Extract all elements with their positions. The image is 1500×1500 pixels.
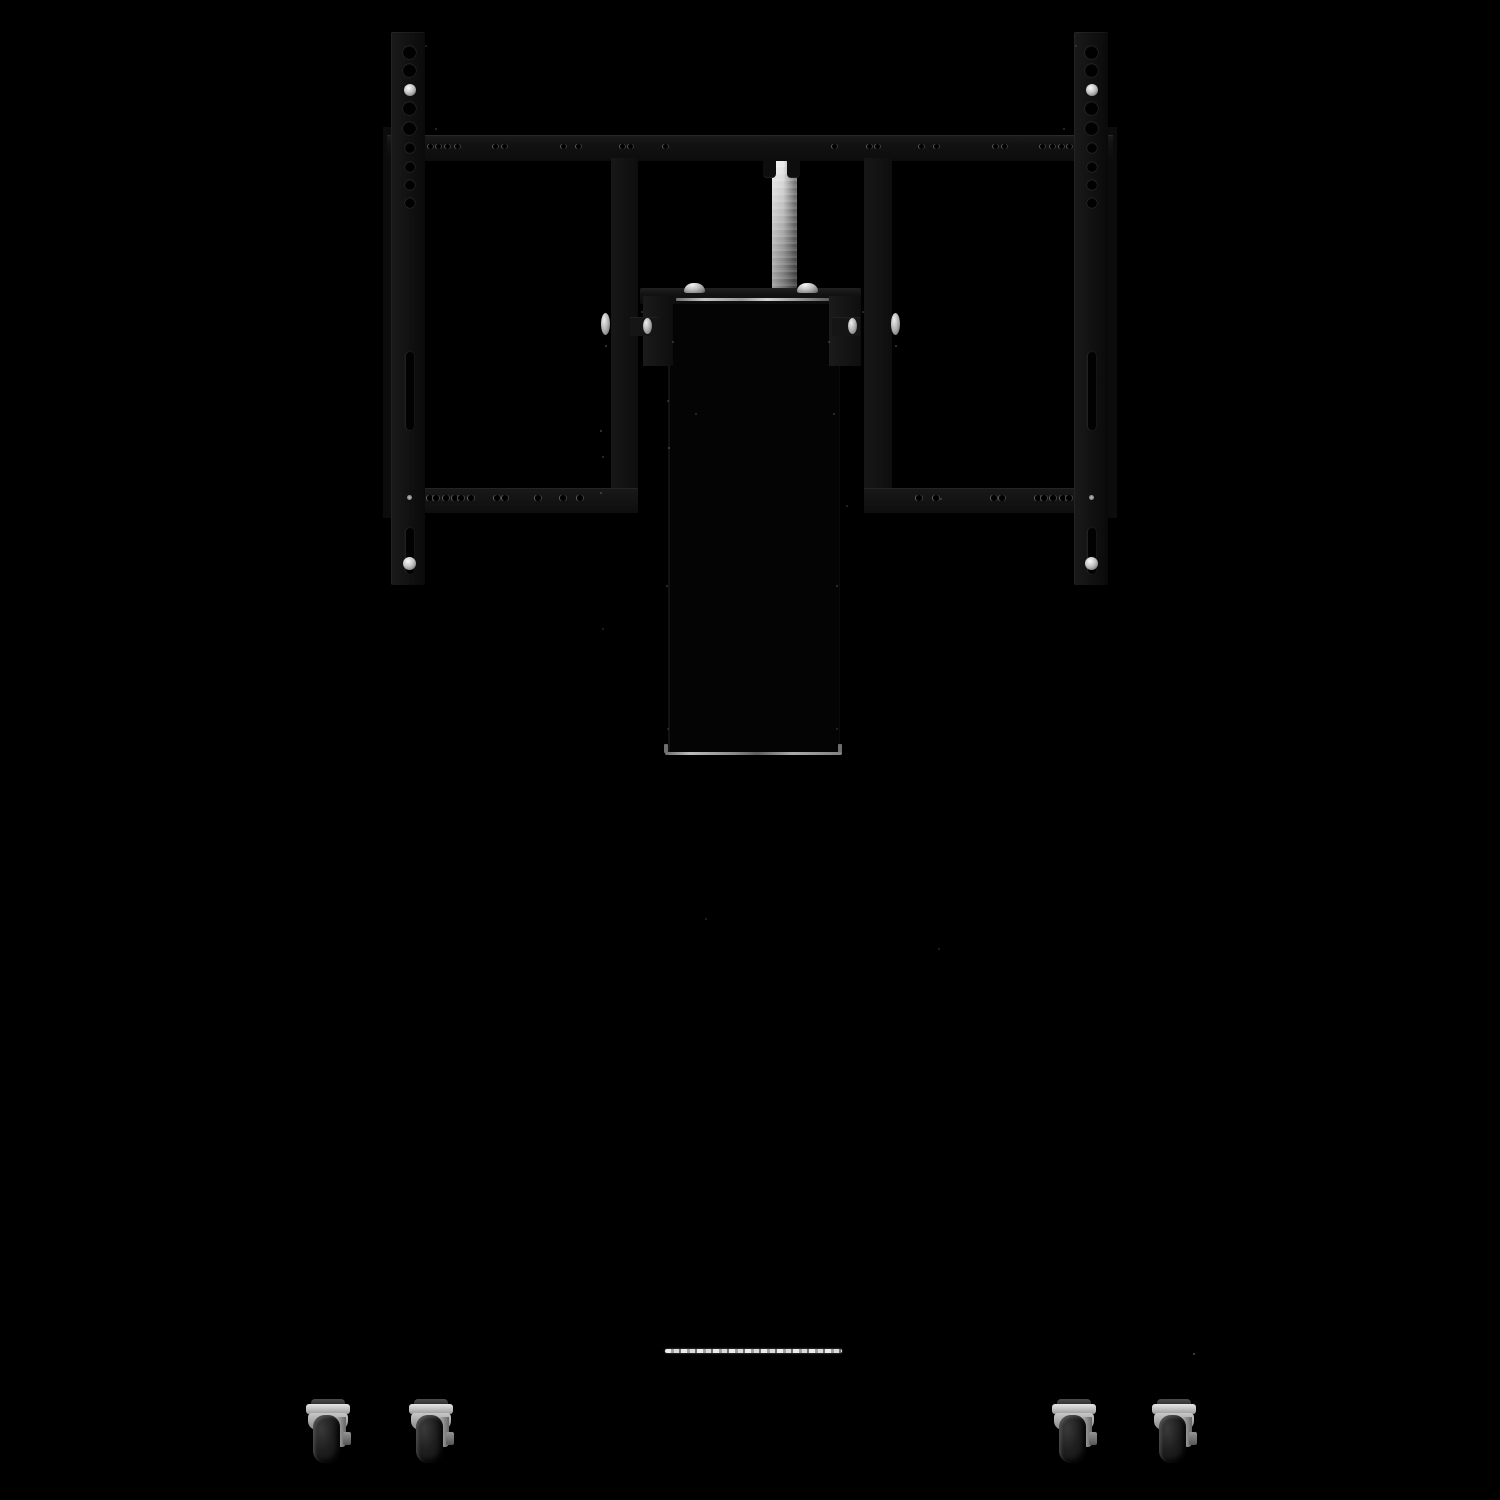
glint-speck [846,505,848,507]
bottom-bar-hole [999,495,1005,501]
glint-speck [600,430,602,432]
vesa-hole [1087,180,1097,190]
vesa-hole [405,162,415,172]
crossbar-hole [445,144,450,149]
caster-wheel [416,1415,443,1463]
dome-bolt [797,283,818,293]
rail-rivet [1089,495,1094,500]
vesa-hole [403,64,416,77]
bottom-bar-hole [1041,495,1047,501]
bottom-bar-hole [468,495,474,501]
rail-slot [405,352,414,430]
pivot-bolt-end [601,313,610,335]
glint-speck [833,413,835,415]
vesa-bolt [1086,84,1098,96]
bottom-bar-hole [433,495,439,501]
vesa-hole [403,122,416,135]
caster-brake-tab [343,1432,351,1445]
frame-side-panel-right [1108,127,1117,518]
bottom-bar-hole [991,495,997,501]
crossbar-hole [1067,144,1072,149]
crossbar-hole [493,144,498,149]
crossbar-hole [576,144,581,149]
bottom-bar-hole [933,495,939,501]
vesa-hole [1087,198,1097,208]
crossbar-hole [628,144,633,149]
glint-speck [641,311,643,313]
bottom-bar-hole [535,495,541,501]
crossbar-hole [919,144,924,149]
crossbar-hole [502,144,507,149]
bottom-bar-hole [458,495,464,501]
caster-brake-tab [446,1432,454,1445]
bottom-bar-hole [502,495,508,501]
rail-slot [1087,352,1096,430]
glint-speck [602,456,604,458]
bottom-bar-hole [452,495,458,501]
crossbar-hole [436,144,441,149]
caster [409,1399,453,1465]
vesa-hole [1085,46,1098,59]
glint-speck [672,341,674,343]
vesa-hole [1085,122,1098,135]
bottom-bar-hole [1050,495,1056,501]
crossbar-hole [428,144,433,149]
vesa-hole [1087,162,1097,172]
crossbar-hole [875,144,880,149]
glint-speck [828,341,830,343]
vesa-hole [1085,64,1098,77]
bottom-bar-hole [577,495,583,501]
glint-speck [435,128,437,130]
caster [306,1399,350,1465]
rail-rivet [407,495,412,500]
glint-speck [1063,128,1065,130]
bottom-bar-hole [1066,495,1072,501]
glint-speck [667,728,669,730]
product-photo-canvas [0,0,1500,1500]
caster-wheel [1059,1415,1086,1463]
bracket-edge-highlight [676,298,833,301]
glint-speck [862,311,864,313]
bottom-bar-hole [494,495,500,501]
pivot-pin [643,318,652,334]
caster [1052,1399,1096,1465]
crossbar-hole [934,144,939,149]
bottom-bar-hole [1035,495,1041,501]
rail-screw [1085,557,1098,570]
glint-speck [602,628,604,630]
vesa-hole [405,198,415,208]
glint-speck [666,585,668,587]
caster-wheel [313,1415,340,1463]
glint-speck [895,345,897,347]
crossbar-hole [832,144,837,149]
vesa-hole [403,46,416,59]
glint-speck [1193,1353,1195,1355]
crossbar-hole [663,144,668,149]
rail-screw [403,557,416,570]
pivot-bolt-end [891,313,900,335]
crossbar-hole [1050,144,1055,149]
crossbar-hole [620,144,625,149]
bottom-bar-hole [443,495,449,501]
bottom-bar-hole [560,495,566,501]
bottom-bar-hole [427,495,433,501]
caster [1152,1399,1196,1465]
crossbar-hole [1040,144,1045,149]
vesa-hole [405,143,415,153]
inner-bar-right [864,158,892,512]
lift-column [668,297,840,754]
crossbar-hole [1002,144,1007,149]
glint-speck [600,492,602,494]
vesa-rail-right [1074,32,1108,585]
glint-speck [605,345,607,347]
crossbar-hole [1059,144,1064,149]
glint-speck [695,413,697,415]
vesa-rail-left [391,32,425,585]
column-bottom-edge [665,752,842,755]
glint-speck [940,498,942,500]
caster-brake-tab [1089,1432,1097,1445]
vesa-hole [1085,102,1098,115]
base-top-edge [665,1349,842,1353]
vesa-hole [405,180,415,190]
bottom-bar-hole [1060,495,1066,501]
vesa-hole [403,102,416,115]
crossbar-hole [867,144,872,149]
glint-speck [836,585,838,587]
glint-speck [1075,45,1077,47]
caster-wheel [1159,1415,1186,1463]
crossbar-hole [993,144,998,149]
bottom-bar-hole [916,495,922,501]
crossbar-hole [561,144,566,149]
gas-spring-piston [772,158,797,295]
pivot-pin [848,318,857,334]
mount-bracket [640,288,861,304]
vesa-bolt [404,84,416,96]
glint-speck [668,447,670,449]
vesa-hole [1087,143,1097,153]
glint-speck [425,45,427,47]
dome-bolt [684,283,705,293]
glint-speck [705,918,707,920]
bottom-bar-right [864,488,1108,513]
glint-speck [836,728,838,730]
caster-brake-tab [1189,1432,1197,1445]
glint-speck [938,948,940,950]
glint-speck [667,400,669,402]
crossbar-hole [455,144,460,149]
